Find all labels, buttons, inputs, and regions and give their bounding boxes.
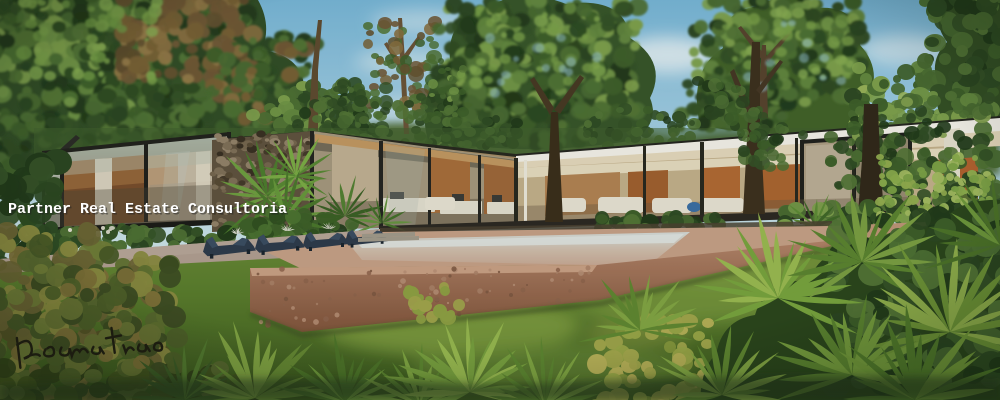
svg-text:Partner Real Estate Consultori: Partner Real Estate Consultoria <box>8 201 287 218</box>
